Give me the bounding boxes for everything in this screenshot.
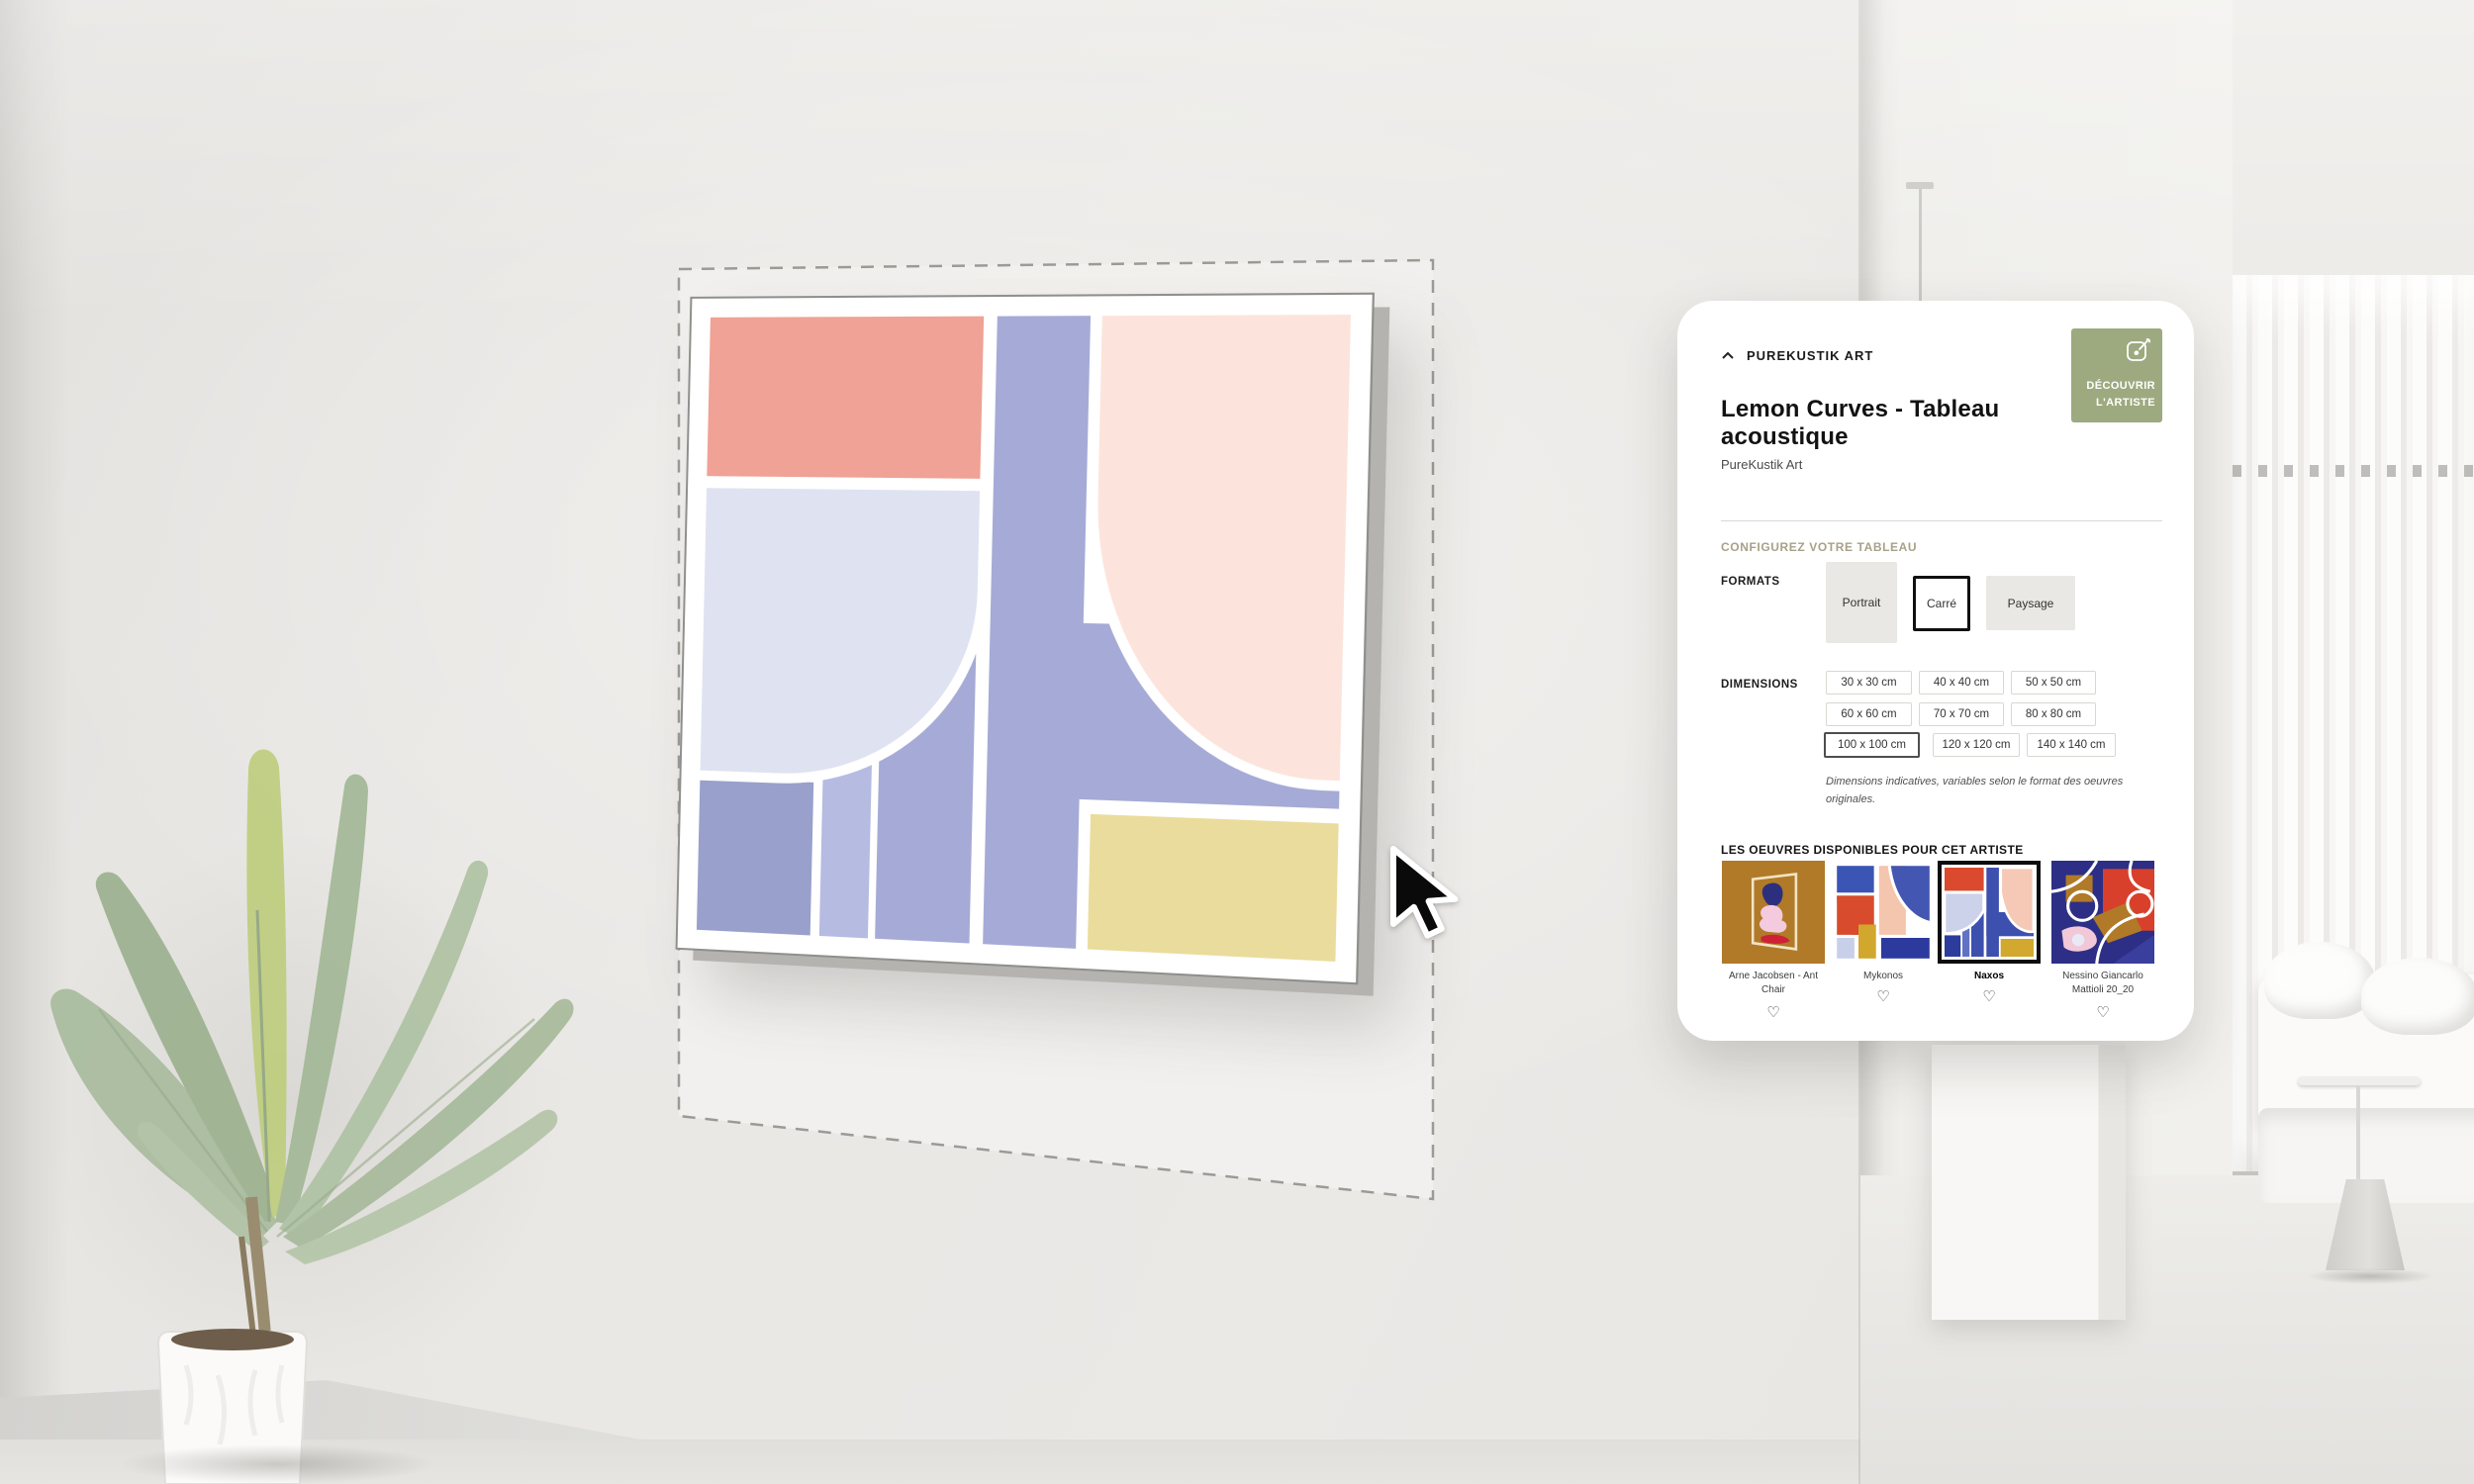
dimensions-note: Dimensions indicatives, variables selon …	[1826, 774, 2152, 808]
art-shape-salmon-rect	[707, 317, 984, 479]
mouse-cursor	[1381, 843, 1480, 942]
favorite-heart-icon[interactable]: ♡	[1722, 1005, 1825, 1020]
brand-label: PUREKUSTIK ART	[1747, 348, 1873, 363]
dimension-100x100-button[interactable]: 100 x 100 cm	[1824, 732, 1920, 758]
dimension-140x140-button[interactable]: 140 x 140 cm	[2027, 733, 2116, 757]
configure-section-title: CONFIGUREZ VOTRE TABLEAU	[1721, 540, 1917, 554]
dimension-50x50-button[interactable]: 50 x 50 cm	[2011, 671, 2096, 695]
format-portrait-button[interactable]: Portrait	[1826, 562, 1897, 643]
dimension-40x40-button[interactable]: 40 x 40 cm	[1919, 671, 2004, 695]
dimension-80x80-button[interactable]: 80 x 80 cm	[2011, 702, 2096, 726]
wall-artwork-canvas[interactable]	[676, 293, 1375, 985]
mykonos-art	[1832, 861, 1935, 964]
pot-shadow	[119, 1444, 435, 1484]
favorite-heart-icon[interactable]: ♡	[1832, 989, 1935, 1004]
favorite-heart-icon[interactable]: ♡	[1938, 989, 2041, 1004]
dimensions-label: DIMENSIONS	[1721, 679, 1798, 691]
dimension-60x60-button[interactable]: 60 x 60 cm	[1826, 702, 1912, 726]
dimension-30x30-button[interactable]: 30 x 30 cm	[1826, 671, 1912, 695]
panel-header[interactable]: PUREKUSTIK ART	[1721, 348, 1873, 363]
artworks-heading: LES OEUVRES DISPONIBLES POUR CET ARTISTE	[1721, 843, 2024, 857]
format-paysage-button[interactable]: Paysage	[1986, 576, 2075, 630]
potted-plant	[20, 683, 594, 1484]
art-shape-yellow-rect	[1088, 814, 1339, 962]
chevron-up-icon	[1721, 349, 1735, 363]
artwork-thumb-mykonos[interactable]	[1832, 861, 1935, 964]
artwork-label: Arne Jacobsen - Ant Chair	[1722, 970, 1825, 996]
art-shape-dark-periwinkle	[697, 779, 813, 944]
format-carre-button[interactable]: Carré	[1913, 576, 1970, 631]
configurator-panel: PUREKUSTIK ART DÉCOUVRIR L'ARTISTE Lemon…	[1677, 301, 2194, 1041]
edit-compose-icon	[2124, 336, 2153, 366]
artwork-label: Nessino Giancarlo Mattioli 20_20	[2051, 970, 2154, 996]
artwork-thumb-nessino[interactable]	[2051, 861, 2154, 964]
artwork-label: Mykonos	[1832, 970, 1935, 983]
arne-jacobsen-art	[1722, 861, 1825, 964]
discover-button-label: DÉCOUVRIR L'ARTISTE	[2071, 378, 2155, 412]
product-title: Lemon Curves - Tableau acoustique	[1721, 396, 2008, 450]
artwork-composition	[697, 315, 1351, 962]
dimension-70x70-button[interactable]: 70 x 70 cm	[1919, 702, 2004, 726]
formats-label: FORMATS	[1721, 576, 1780, 588]
artist-name: PureKustik Art	[1721, 457, 1802, 472]
room-scene: PUREKUSTIK ART DÉCOUVRIR L'ARTISTE Lemon…	[0, 0, 2474, 1484]
artwork-thumb-arne-jacobsen[interactable]	[1722, 861, 1825, 964]
divider	[1721, 520, 2162, 521]
favorite-heart-icon[interactable]: ♡	[2051, 1005, 2154, 1020]
artwork-label-selected: Naxos	[1938, 970, 2041, 983]
nessino-art	[2051, 861, 2154, 964]
artwork-thumb-naxos[interactable]	[1938, 861, 2041, 964]
dimension-120x120-button[interactable]: 120 x 120 cm	[1933, 733, 2020, 757]
discover-artist-button[interactable]: DÉCOUVRIR L'ARTISTE	[2071, 328, 2162, 422]
naxos-art	[1945, 868, 2034, 957]
